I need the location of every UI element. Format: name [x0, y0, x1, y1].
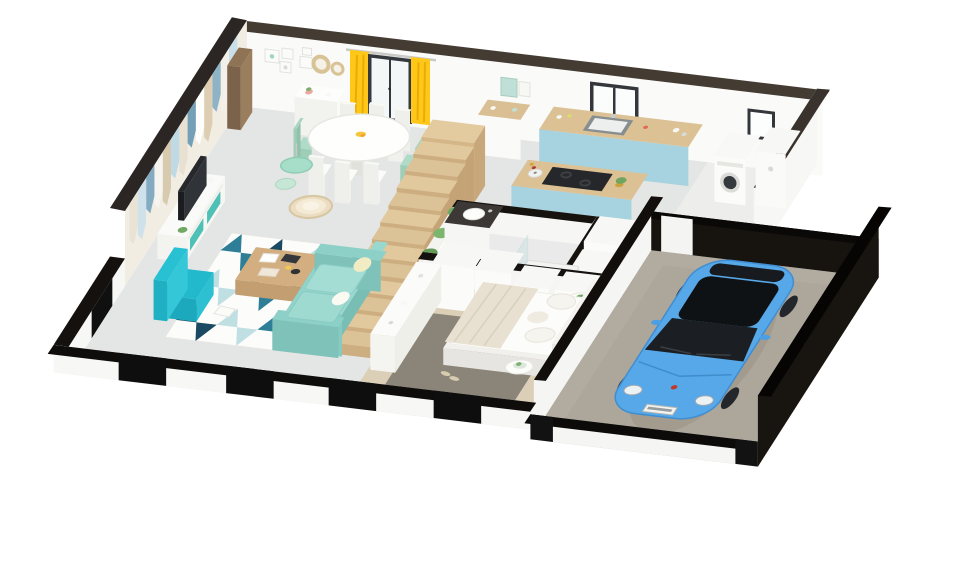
garage-corner-wall [735, 439, 758, 467]
bedroom-dresser [370, 334, 395, 373]
window-opening [329, 378, 377, 411]
television [178, 191, 184, 221]
window-opening [434, 391, 481, 424]
service-door [661, 216, 693, 256]
dining-chair-back [335, 162, 350, 204]
round-woven-mirror [332, 63, 343, 75]
curtain-fold [424, 62, 425, 122]
garage-service-door [661, 216, 693, 256]
window-opening [119, 353, 167, 386]
curtain-fold [363, 55, 364, 115]
wall-shelf-box [300, 56, 312, 68]
dining-chair-back [364, 163, 379, 205]
entry-tall-cabinet [227, 66, 241, 131]
wall-shelf-box [282, 48, 293, 59]
round-woven-mirror [314, 56, 329, 73]
curtain-fold [418, 62, 419, 120]
window-opening [226, 366, 273, 399]
dryer [756, 151, 786, 209]
garage-corner-wall [530, 414, 553, 442]
floorplan-3d-render: 3D isometric floor plan rendering of a s… [0, 0, 960, 576]
wall-shelf-box [303, 48, 312, 56]
curtain-right [411, 57, 430, 125]
leaning-picture [501, 77, 517, 97]
armchair-backrest [154, 280, 168, 322]
coffee-table-book [259, 254, 279, 263]
floorplan-stage: 3D isometric floor plan rendering of a s… [0, 0, 960, 576]
leaning-picture [519, 81, 530, 96]
coffee-table-book [258, 268, 279, 277]
